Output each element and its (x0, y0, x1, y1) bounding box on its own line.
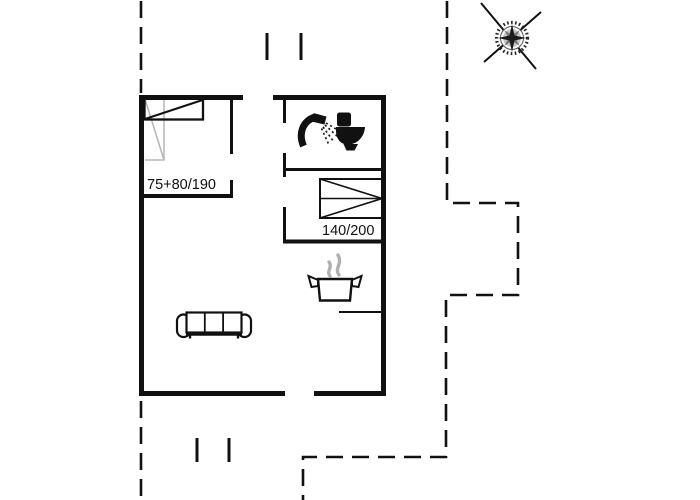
sofa-seat (187, 313, 242, 333)
pot-handle-left (309, 276, 319, 287)
toilet-tank (337, 113, 351, 127)
pot-handle-right (352, 276, 362, 287)
toilet-bowl (336, 127, 365, 145)
bed2-diagonal-bottom (320, 199, 382, 219)
bed-single-icon (145, 99, 204, 161)
sofa-icon (177, 313, 251, 339)
bed-double-icon (320, 179, 382, 218)
shower-head (312, 114, 327, 125)
property-boundary (141, 1, 518, 500)
steaming-pot-icon (309, 255, 362, 301)
bed2-diagonal-top (320, 179, 382, 199)
toilet-icon (336, 113, 365, 151)
bed1-size-label: 75+80/190 (147, 177, 216, 193)
steam (329, 255, 340, 276)
bed2-size-label: 140/200 (322, 223, 374, 239)
floor-plan-canvas: 75+80/190 140/200 (0, 0, 700, 500)
floor-plan-drawing: 75+80/190 140/200 (0, 0, 700, 500)
compass-rose-icon (481, 3, 541, 69)
pot-body (318, 279, 352, 301)
light-bed-diagonal (145, 99, 164, 160)
boundary-right-line (303, 1, 518, 500)
dark-bed-diagonal (145, 100, 203, 119)
toilet-base (344, 144, 359, 151)
shower-icon (301, 114, 341, 147)
